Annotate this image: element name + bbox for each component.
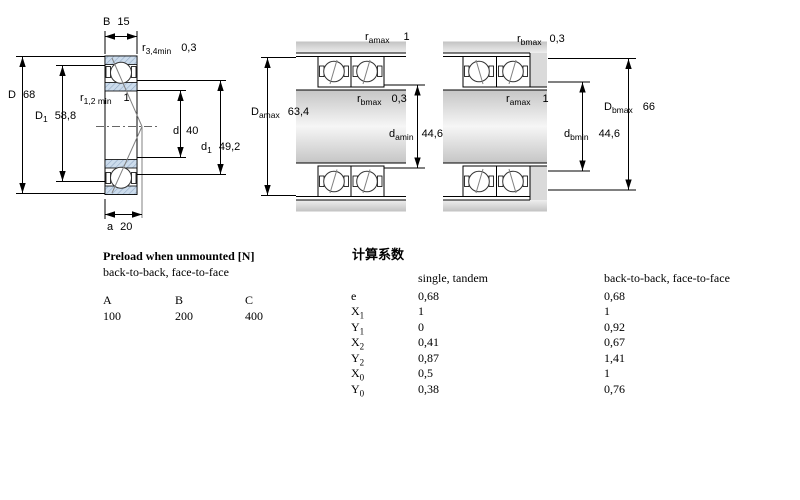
- dim-symbol: B: [103, 16, 110, 28]
- dim-label-D1: D158,8: [35, 110, 76, 123]
- dim-subscript: bmin: [570, 132, 588, 142]
- bearing-pair-top: [463, 57, 530, 88]
- factor-value-paired: 1: [604, 366, 610, 380]
- dimension-lines: [548, 59, 636, 191]
- preload-col-header-C: C: [245, 293, 253, 307]
- dim-value: 44,6: [422, 128, 443, 140]
- dim-label-rbmax: rbmax0,3: [357, 93, 407, 106]
- dim-symbol: D: [251, 106, 259, 118]
- bearing-pair-bottom: [463, 166, 530, 197]
- paired-bearing-drawing: [435, 28, 650, 223]
- dim-subscript: 1: [43, 114, 48, 124]
- dim-value: 68: [23, 89, 35, 101]
- dim-label-dbmin: dbmin44,6: [564, 128, 620, 141]
- dim-value: 0,3: [549, 33, 564, 45]
- dim-subscript: 3,4min: [146, 46, 172, 56]
- dim-subscript: bmax: [521, 37, 542, 47]
- factor-value-single: 0,87: [418, 351, 439, 365]
- factor-symbol: Y2: [351, 351, 364, 365]
- dim-label-damin: damin44,6: [389, 128, 443, 141]
- dim-subscript: amin: [395, 132, 413, 142]
- dim-label-r34: r3,4min0,3: [142, 42, 196, 55]
- dim-value: 1: [124, 92, 130, 104]
- bearing-pair-bottom: [318, 166, 384, 197]
- preload-subtitle: back-to-back, face-to-face: [103, 265, 229, 279]
- dim-symbol: d: [173, 125, 179, 137]
- factor-value-single: 0,38: [418, 382, 439, 396]
- dim-label-ramax-2: ramax1: [506, 93, 549, 106]
- dim-label-d1: d149,2: [201, 141, 240, 154]
- dim-value: 1: [542, 93, 548, 105]
- dim-symbol: D: [35, 110, 43, 122]
- factors-title: 计算系数: [352, 248, 404, 262]
- dim-label-ramax: ramax1: [365, 31, 410, 44]
- dim-value: 15: [117, 16, 129, 28]
- dim-value: 66: [643, 101, 655, 113]
- dim-symbol: a: [107, 221, 113, 233]
- preload-title: Preload when unmounted [N]: [103, 249, 254, 263]
- factor-value-paired: 0,92: [604, 320, 625, 334]
- factor-value-paired: 0,76: [604, 382, 625, 396]
- dim-subscript: amax: [369, 35, 390, 45]
- ball-bottom: [106, 167, 136, 188]
- preload-value-B: 200: [175, 309, 193, 323]
- dim-subscript: bmax: [612, 105, 633, 115]
- dim-value: 1: [403, 31, 409, 43]
- factor-value-paired: 0,68: [604, 289, 625, 303]
- dim-value: 0,3: [391, 93, 406, 105]
- dim-subscript: 1: [207, 145, 212, 155]
- preload-value-A: 100: [103, 309, 121, 323]
- dim-value: 20: [120, 221, 132, 233]
- dim-label-Damax: Damax63,4: [251, 106, 309, 119]
- dim-label-a: a20: [107, 221, 132, 234]
- dim-label-B: B15: [103, 16, 130, 29]
- dim-label-Dbmax: Dbmax66: [604, 101, 655, 114]
- bearing-pair-top: [318, 57, 384, 88]
- preload-value-C: 400: [245, 309, 263, 323]
- factor-value-single: 0,68: [418, 289, 439, 303]
- dim-value: 58,8: [55, 110, 76, 122]
- tandem-pair-drawing: [250, 28, 450, 223]
- dim-subscript: amax: [510, 97, 531, 107]
- dim-symbol: D: [604, 101, 612, 113]
- preload-col-header-A: A: [103, 293, 112, 307]
- dim-label-d: d40: [173, 125, 198, 138]
- dim-value: 40: [186, 125, 198, 137]
- dim-symbol: D: [8, 89, 16, 101]
- dim-label-r12: r1,2 min1: [80, 92, 130, 105]
- factor-symbol: X1: [351, 304, 364, 318]
- factors-col-header-single: single, tandem: [418, 271, 488, 285]
- dim-value: 63,4: [288, 106, 309, 118]
- preload-col-header-B: B: [175, 293, 183, 307]
- factor-value-paired: 1,41: [604, 351, 625, 365]
- factor-symbol: e: [351, 289, 356, 303]
- factor-symbol: Y1: [351, 320, 364, 334]
- dim-subscript: 1,2 min: [84, 96, 112, 106]
- factors-col-header-paired: back-to-back, face-to-face: [604, 271, 730, 285]
- dim-value: 44,6: [599, 128, 620, 140]
- bearing-datasheet: B15 r3,4min0,3 D68 D158,8 r1,2 min1 d40 …: [0, 0, 800, 500]
- dim-subscript: amax: [259, 110, 280, 120]
- factor-value-single: 1: [418, 304, 424, 318]
- dim-value: 0,3: [181, 42, 196, 54]
- factor-value-single: 0,41: [418, 335, 439, 349]
- dim-label-rbmax-2: rbmax0,3: [517, 33, 565, 46]
- factor-symbol: X2: [351, 335, 364, 349]
- factor-value-paired: 0,67: [604, 335, 625, 349]
- factor-value-paired: 1: [604, 304, 610, 318]
- factor-symbol: Y0: [351, 382, 364, 396]
- factor-value-single: 0: [418, 320, 424, 334]
- dim-subscript: bmax: [361, 97, 382, 107]
- ball-top: [106, 62, 136, 83]
- factor-value-single: 0,5: [418, 366, 433, 380]
- factor-symbol: X0: [351, 366, 364, 380]
- dim-value: 49,2: [219, 141, 240, 153]
- dim-label-D: D68: [8, 89, 35, 102]
